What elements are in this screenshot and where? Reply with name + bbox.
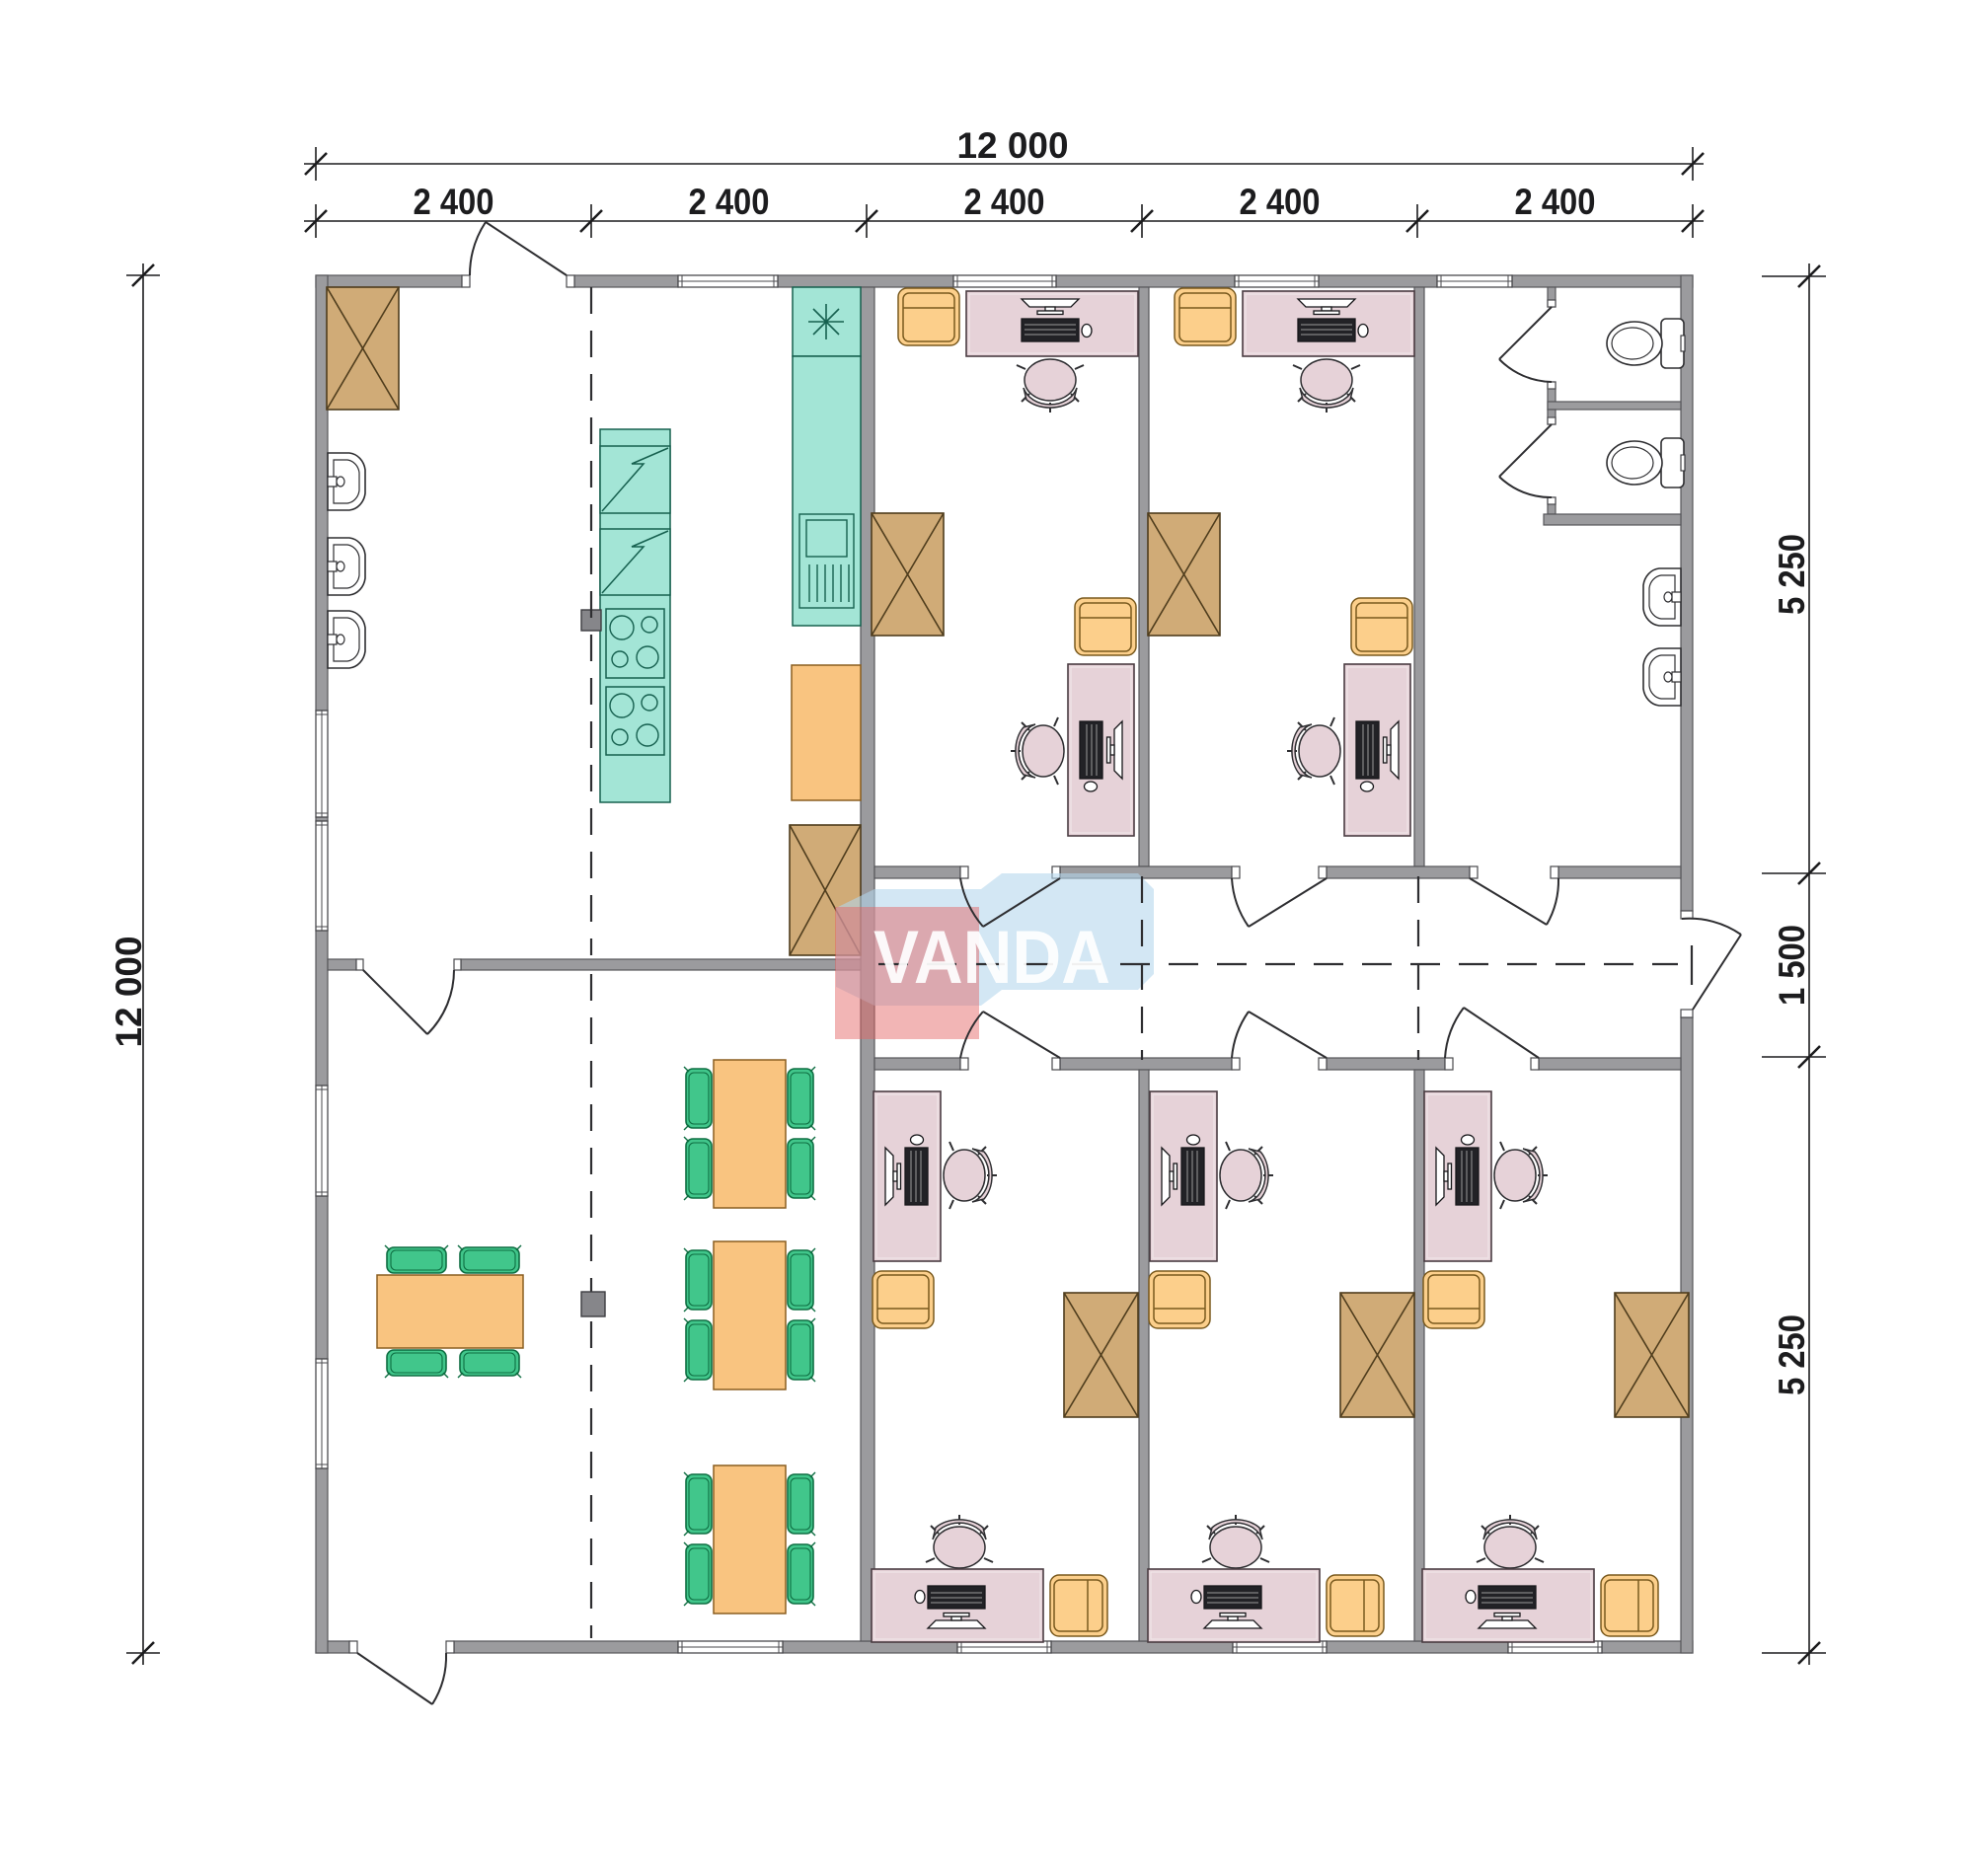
- svg-text:2 400: 2 400: [689, 181, 770, 222]
- svg-text:5 250: 5 250: [1771, 534, 1812, 615]
- svg-text:2 400: 2 400: [964, 181, 1045, 222]
- svg-text:12 000: 12 000: [957, 124, 1069, 166]
- svg-text:2 400: 2 400: [1515, 181, 1596, 222]
- svg-text:1 500: 1 500: [1771, 925, 1812, 1006]
- svg-text:VANDA: VANDA: [873, 916, 1110, 1000]
- svg-text:2 400: 2 400: [1240, 181, 1321, 222]
- svg-text:2 400: 2 400: [414, 181, 494, 222]
- svg-text:12 000: 12 000: [108, 937, 149, 1048]
- svg-text:5 250: 5 250: [1771, 1314, 1812, 1395]
